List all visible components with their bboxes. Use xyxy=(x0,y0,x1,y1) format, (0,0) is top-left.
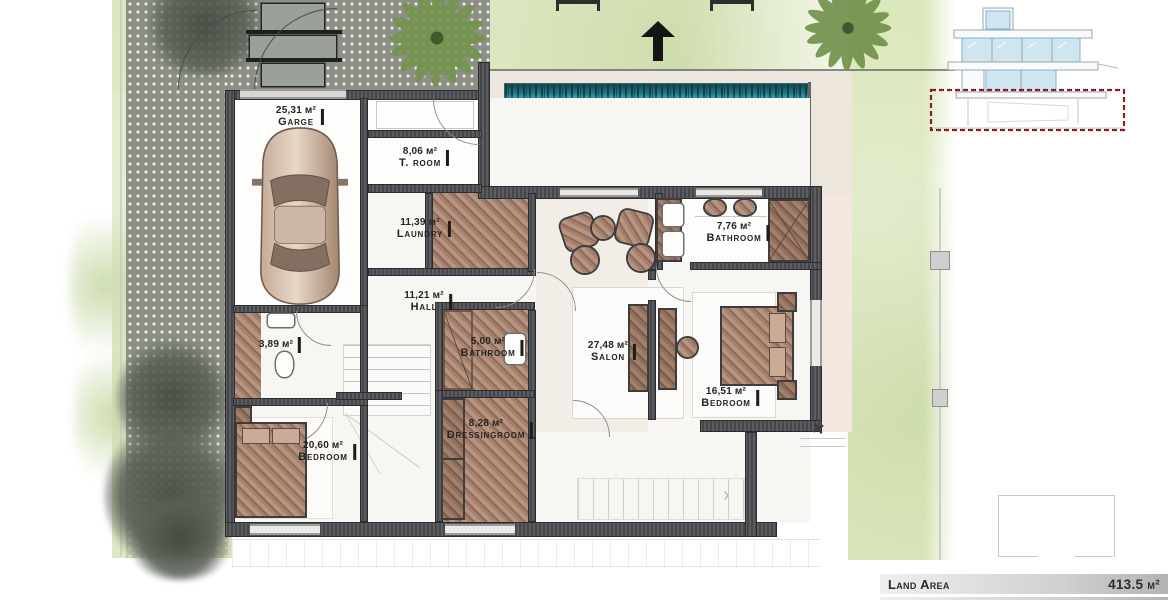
nightstand xyxy=(236,408,250,422)
wall-segment xyxy=(360,98,368,313)
sliding-door-opening xyxy=(560,188,638,197)
wall-segment xyxy=(435,390,443,522)
label-tick xyxy=(446,150,449,166)
garage-door-line xyxy=(240,89,346,99)
wall-segment xyxy=(745,432,757,537)
window-opening xyxy=(250,524,320,535)
label-tick xyxy=(449,294,452,310)
house-elevation-sketch xyxy=(928,2,1128,134)
shower-cross-lines xyxy=(768,199,810,262)
summary-row-land-area: Land Area 413.5 м² xyxy=(880,574,1168,594)
wall-segment xyxy=(336,392,402,400)
site-plan-canvas: › xyxy=(0,0,1170,600)
pillow xyxy=(770,348,785,376)
desk xyxy=(660,310,675,388)
bench-icon xyxy=(710,0,754,11)
wall-segment xyxy=(435,302,443,398)
north-arrow-icon xyxy=(641,21,675,61)
window-opening xyxy=(810,300,822,366)
window-opening xyxy=(445,524,515,535)
sink-basin xyxy=(735,200,755,215)
room-label-dressingroom: 8,28 м²Dressingroom xyxy=(447,419,533,441)
wall-segment xyxy=(700,420,822,432)
desk-chair xyxy=(678,338,697,357)
summary-value: 413.5 м² xyxy=(1108,577,1160,592)
label-tick xyxy=(633,344,636,360)
wall-segment xyxy=(648,270,656,280)
summary-label: Land Area xyxy=(888,577,950,592)
toilet xyxy=(663,204,683,226)
wall-segment xyxy=(648,300,656,420)
palm-tree-icon xyxy=(800,0,896,76)
room-label-wc: 3,89 м² xyxy=(259,337,301,353)
bench-icon xyxy=(556,0,600,11)
label-tick xyxy=(448,221,451,237)
ottoman xyxy=(628,245,654,271)
plant-symbol: ✕ xyxy=(810,419,826,439)
ottoman xyxy=(572,247,598,273)
wc-floor-strip xyxy=(233,313,261,398)
faint-outline-rect xyxy=(998,495,1115,557)
room-label-troom: 8,06 м²T. room xyxy=(399,147,449,169)
boundary-fence xyxy=(939,188,941,560)
room-label-garage: 25,31 м²Garge xyxy=(276,106,324,128)
area-summary-table: Land Area 413.5 м² Total area on the flo… xyxy=(880,574,1168,600)
room-label-hall: 11,21 м²Hall xyxy=(404,291,452,313)
wall-segment xyxy=(690,262,822,270)
wc-toilet xyxy=(276,352,293,377)
label-tick xyxy=(521,340,524,356)
faint-outline-seg xyxy=(998,556,1038,557)
pillow xyxy=(770,314,785,342)
fence-post xyxy=(931,252,949,269)
pillow xyxy=(243,429,269,443)
east-terrace xyxy=(820,196,852,432)
nightstand xyxy=(779,382,795,398)
fence-post xyxy=(933,390,947,406)
label-tick xyxy=(767,225,770,241)
wall-segment xyxy=(360,305,368,522)
nightstand xyxy=(779,294,795,310)
wall-segment xyxy=(435,390,535,398)
wall-segment xyxy=(368,184,482,193)
room-label-bedroom2: 20,60 м²Bedroom xyxy=(298,441,356,463)
south-terrace-hatch xyxy=(232,539,820,567)
wc-sink xyxy=(268,314,294,327)
terrace-step-line xyxy=(800,446,846,447)
tree-silhouette xyxy=(124,498,236,580)
palm-tree-icon xyxy=(383,0,491,92)
wall-segment xyxy=(528,438,536,522)
vanity-counter-line xyxy=(695,216,767,217)
sink-basin xyxy=(705,200,725,215)
wall-segment xyxy=(528,193,536,272)
wall-segment xyxy=(225,90,235,537)
stairs-direction-arrow: › xyxy=(723,484,730,507)
room-label-bathroom1: 5,00 м²Bathroom xyxy=(460,337,523,359)
label-tick xyxy=(298,337,301,353)
room-label-laundry: 11,39 м²Laundry xyxy=(397,218,451,240)
round-table xyxy=(592,217,614,239)
sliding-door-opening xyxy=(696,188,762,197)
exterior-stairs xyxy=(577,478,745,520)
wardrobe xyxy=(443,460,463,518)
room-label-salon: 27,48 м²Salon xyxy=(588,341,636,363)
room-label-bedroom1: 16,51 м²Bedroom xyxy=(701,387,759,409)
car-top-view-icon xyxy=(250,124,350,310)
label-tick xyxy=(321,109,324,125)
pillow xyxy=(273,429,299,443)
label-tick xyxy=(756,390,759,406)
faint-outline-seg xyxy=(1075,556,1113,557)
room-label-bathroom2: 7,76 м²Bathroom xyxy=(706,222,769,244)
label-tick xyxy=(530,422,533,438)
label-tick xyxy=(353,444,356,460)
terrace-step-line xyxy=(800,438,846,439)
bidet xyxy=(663,232,683,256)
